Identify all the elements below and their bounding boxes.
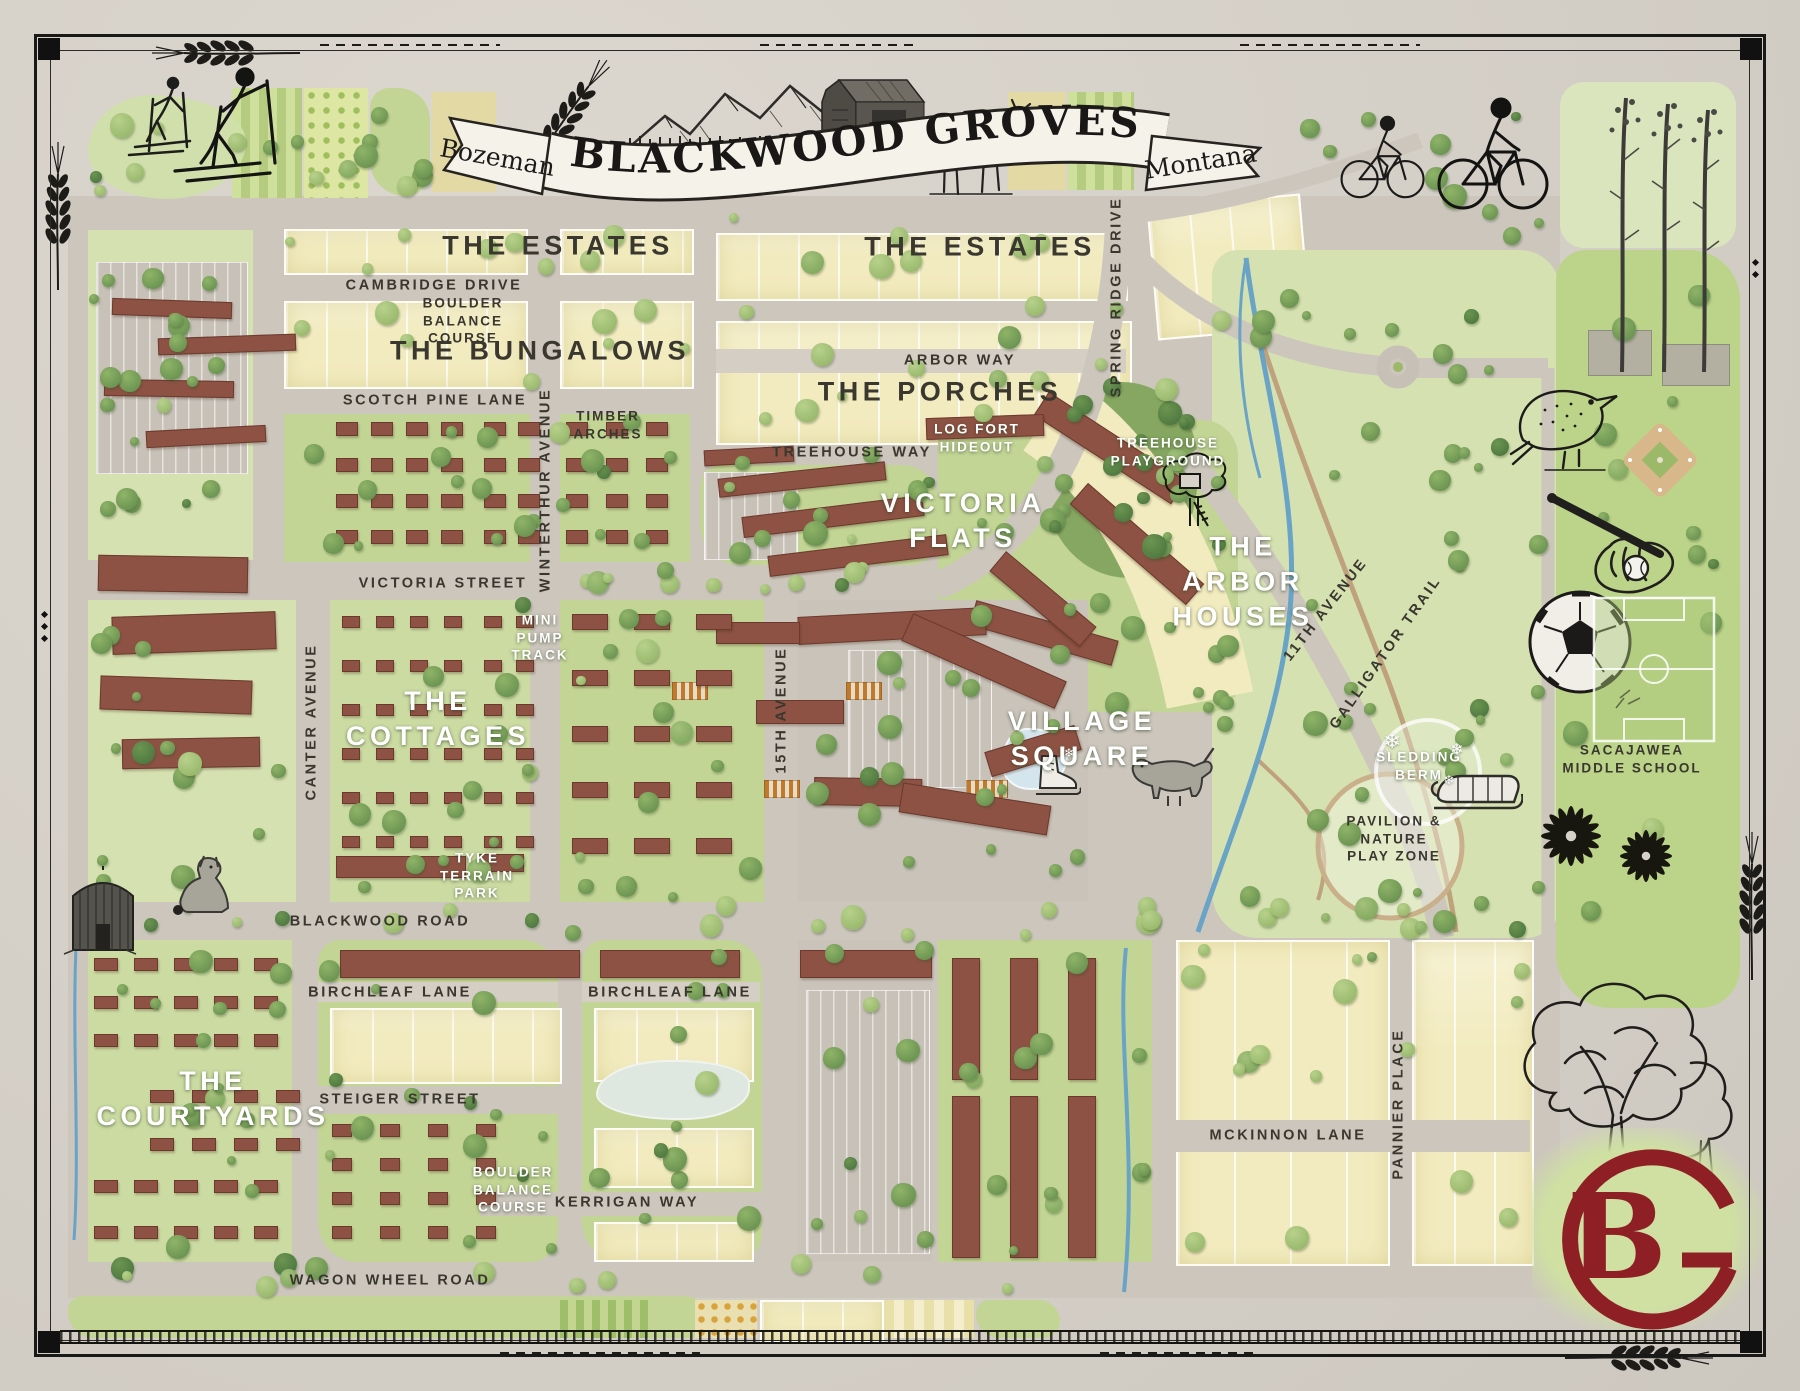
frame-ornament — [1240, 44, 1420, 46]
blackwood-groves-map: THE ESTATESTHE ESTATESTHE BUNGALOWSTHE P… — [0, 0, 1800, 1391]
frame-ornament — [760, 44, 920, 46]
frame-ornament — [1100, 1352, 1260, 1354]
frame-corner — [38, 1331, 60, 1353]
railroad-track — [60, 1330, 1740, 1344]
frame-ornament — [320, 44, 500, 46]
frame-corner — [38, 38, 60, 60]
border-frame-inner — [50, 50, 1750, 1341]
frame-corner — [1740, 1331, 1762, 1353]
frame-corner — [1740, 38, 1762, 60]
frame-ornament — [500, 1352, 700, 1354]
